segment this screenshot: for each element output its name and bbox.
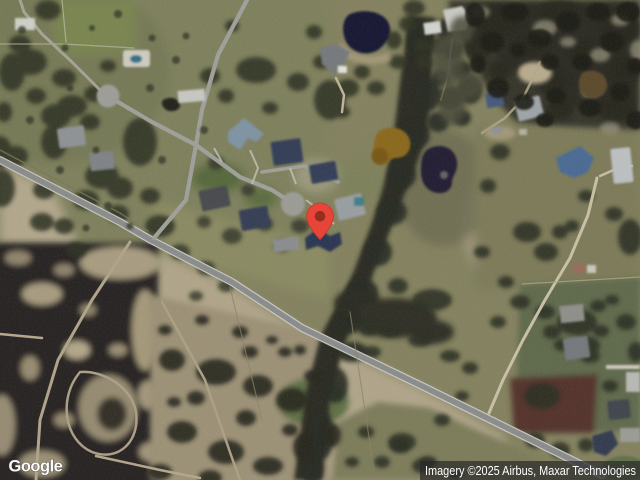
svg-text:Imagery ©2025 Airbus, Maxar Te: Imagery ©2025 Airbus, Maxar Technologies — [425, 464, 636, 478]
svg-text:Google: Google — [9, 458, 63, 476]
